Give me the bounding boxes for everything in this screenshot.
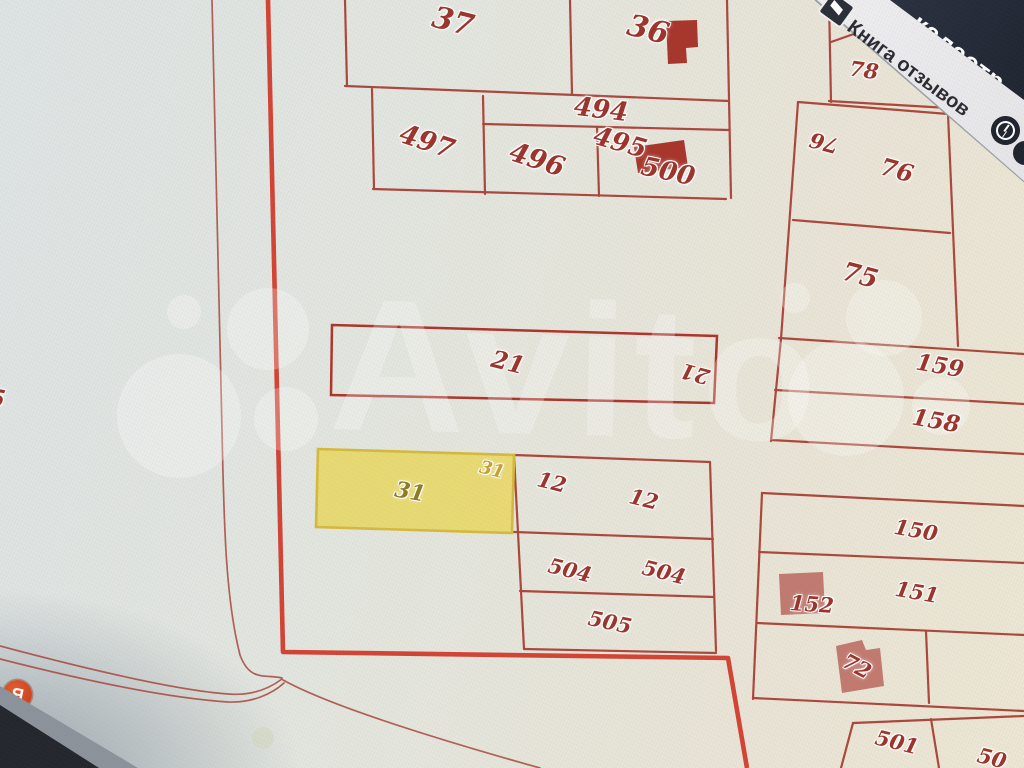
parcel-label-78[interactable]: 78: [848, 56, 880, 85]
parcel-label-497[interactable]: 497: [395, 119, 458, 166]
parcel-label-505[interactable]: 505: [586, 605, 634, 639]
parcel-label-50[interactable]: 50: [975, 742, 1009, 768]
parcel-label-21[interactable]: 21: [488, 344, 527, 380]
parcel-label-12[interactable]: 12: [627, 483, 661, 514]
parcel-label-75[interactable]: 75: [839, 257, 882, 295]
parcel-label-501[interactable]: 501: [873, 725, 922, 760]
parcel-label-504[interactable]: 504: [640, 555, 689, 590]
parcel-label-76[interactable]: 76: [807, 127, 842, 159]
cadastral-map-photo: Avito 3736494497496495500787676751591582…: [0, 0, 1024, 768]
parcel-label-31[interactable]: 31: [477, 457, 506, 483]
parcel-label-72[interactable]: 72: [838, 648, 876, 684]
parcel-label-495[interactable]: 495: [590, 121, 650, 165]
parcel-label-76[interactable]: 76: [877, 152, 917, 189]
parcel-label-150[interactable]: 150: [892, 514, 940, 546]
parcel-label-151[interactable]: 151: [893, 576, 941, 608]
parcel-label-12[interactable]: 12: [535, 466, 569, 497]
parcel-label-21[interactable]: 21: [678, 358, 713, 390]
parcel-labels-layer: 3736494497496495500787676751591582121313…: [0, 0, 1024, 768]
parcel-label-496[interactable]: 496: [505, 137, 568, 184]
parcel-label-504[interactable]: 504: [546, 553, 595, 588]
parcel-label-5[interactable]: 5: [0, 382, 8, 413]
parcel-label-31[interactable]: 31: [393, 477, 428, 508]
parcel-label-152[interactable]: 152: [789, 590, 834, 618]
yandex-letter: Я: [9, 683, 25, 705]
parcel-label-37[interactable]: 37: [429, 0, 478, 44]
parcel-label-159[interactable]: 159: [914, 349, 966, 384]
parcel-label-36[interactable]: 36: [624, 8, 673, 52]
parcel-label-500[interactable]: 500: [638, 152, 697, 193]
parcel-label-158[interactable]: 158: [910, 404, 962, 439]
